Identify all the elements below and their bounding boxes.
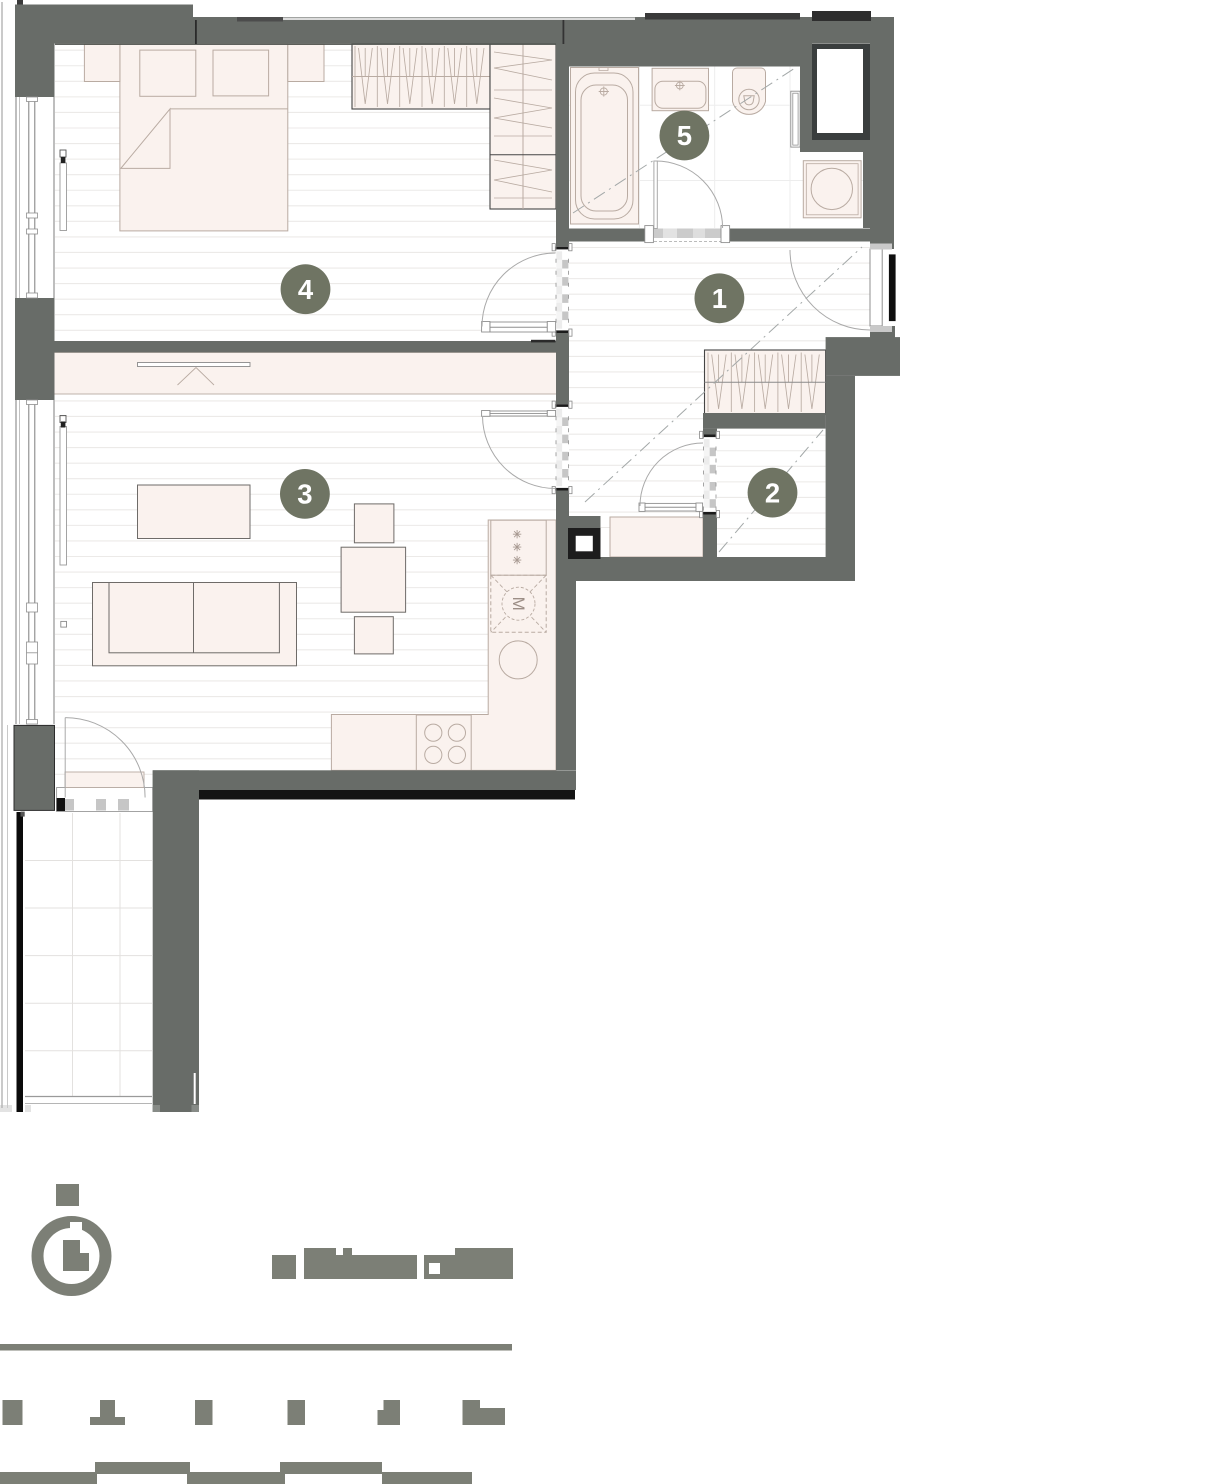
svg-text:M: M [509, 597, 528, 611]
svg-text:5: 5 [677, 120, 692, 151]
svg-text:2: 2 [765, 477, 780, 508]
svg-text:3: 3 [297, 479, 312, 510]
svg-text:1: 1 [712, 283, 727, 314]
svg-text:4: 4 [298, 274, 314, 305]
